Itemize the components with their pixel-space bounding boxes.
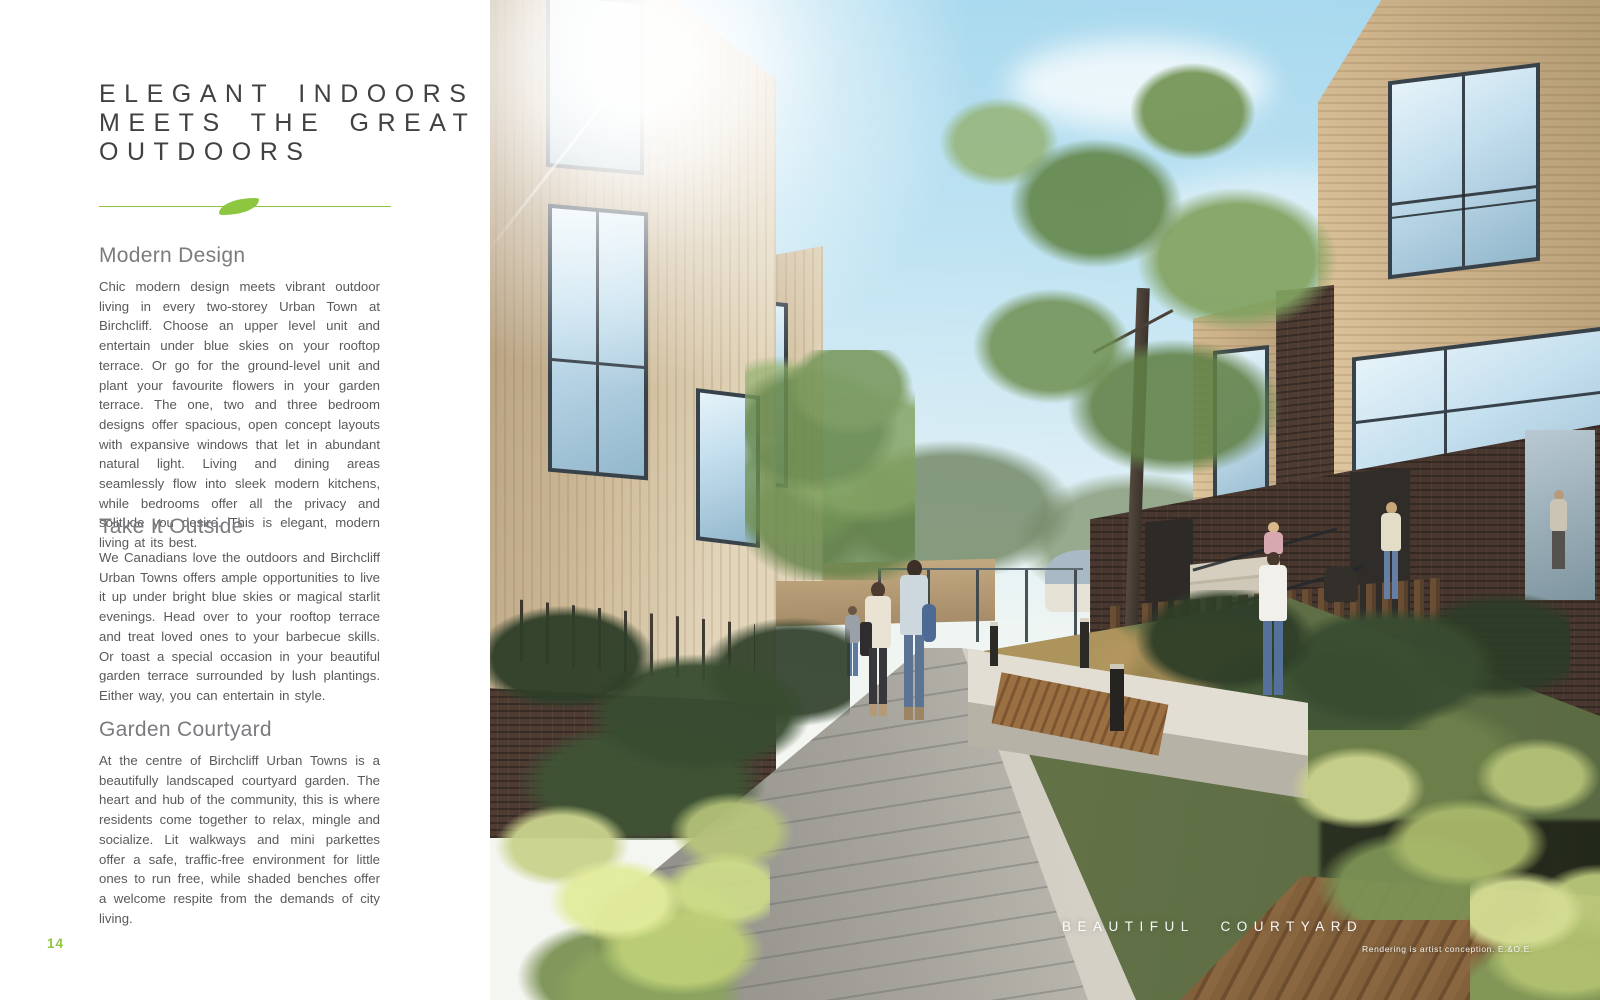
page-title-line-3: OUTDOORS (99, 138, 479, 167)
walking-woman (862, 582, 894, 718)
window-mullion (596, 212, 599, 472)
person-on-porch (1548, 490, 1570, 570)
bollard-light (1110, 664, 1124, 731)
bollard-light (990, 622, 998, 666)
cloud (1010, 40, 1270, 130)
rendering-disclaimer: Rendering is artist conception. E.&O.E. (1362, 944, 1533, 954)
courtyard-rendering-image: BEAUTIFUL COURTYARD Rendering is artist … (490, 0, 1600, 1000)
section-body-take-it-outside: We Canadians love the outdoors and Birch… (99, 548, 380, 706)
section-heading-garden-courtyard: Garden Courtyard (99, 718, 399, 742)
left-building-upper-window (546, 0, 644, 175)
bollard-light (1080, 618, 1089, 668)
father-with-child (1256, 522, 1290, 707)
left-building-main-window (548, 204, 648, 481)
leaf-icon (219, 198, 259, 215)
section-heading-modern-design: Modern Design (99, 244, 399, 268)
woman-on-stairs (1378, 502, 1404, 602)
section-body-garden-courtyard: At the centre of Birchcliff Urban Towns … (99, 751, 380, 928)
page-title-line-2: MEETS THE GREAT (99, 109, 479, 138)
page-title: ELEGANT INDOORS MEETS THE GREAT OUTDOORS (99, 80, 479, 167)
window-mullion (1356, 391, 1600, 424)
page-number: 14 (47, 936, 64, 951)
section-body-modern-design: Chic modern design meets vibrant outdoor… (99, 277, 380, 553)
stroller (1324, 566, 1358, 602)
right-building-upper-window (1388, 63, 1540, 280)
left-building-side-window (696, 388, 760, 548)
left-text-panel: ELEGANT INDOORS MEETS THE GREAT OUTDOORS… (0, 0, 490, 1000)
section-heading-take-it-outside: Take It Outside (99, 515, 399, 539)
photo-caption: BEAUTIFUL COURTYARD (1062, 919, 1363, 934)
window-mullion (1462, 76, 1465, 266)
page-title-line-1: ELEGANT INDOORS (99, 80, 479, 109)
walking-man (896, 560, 932, 720)
